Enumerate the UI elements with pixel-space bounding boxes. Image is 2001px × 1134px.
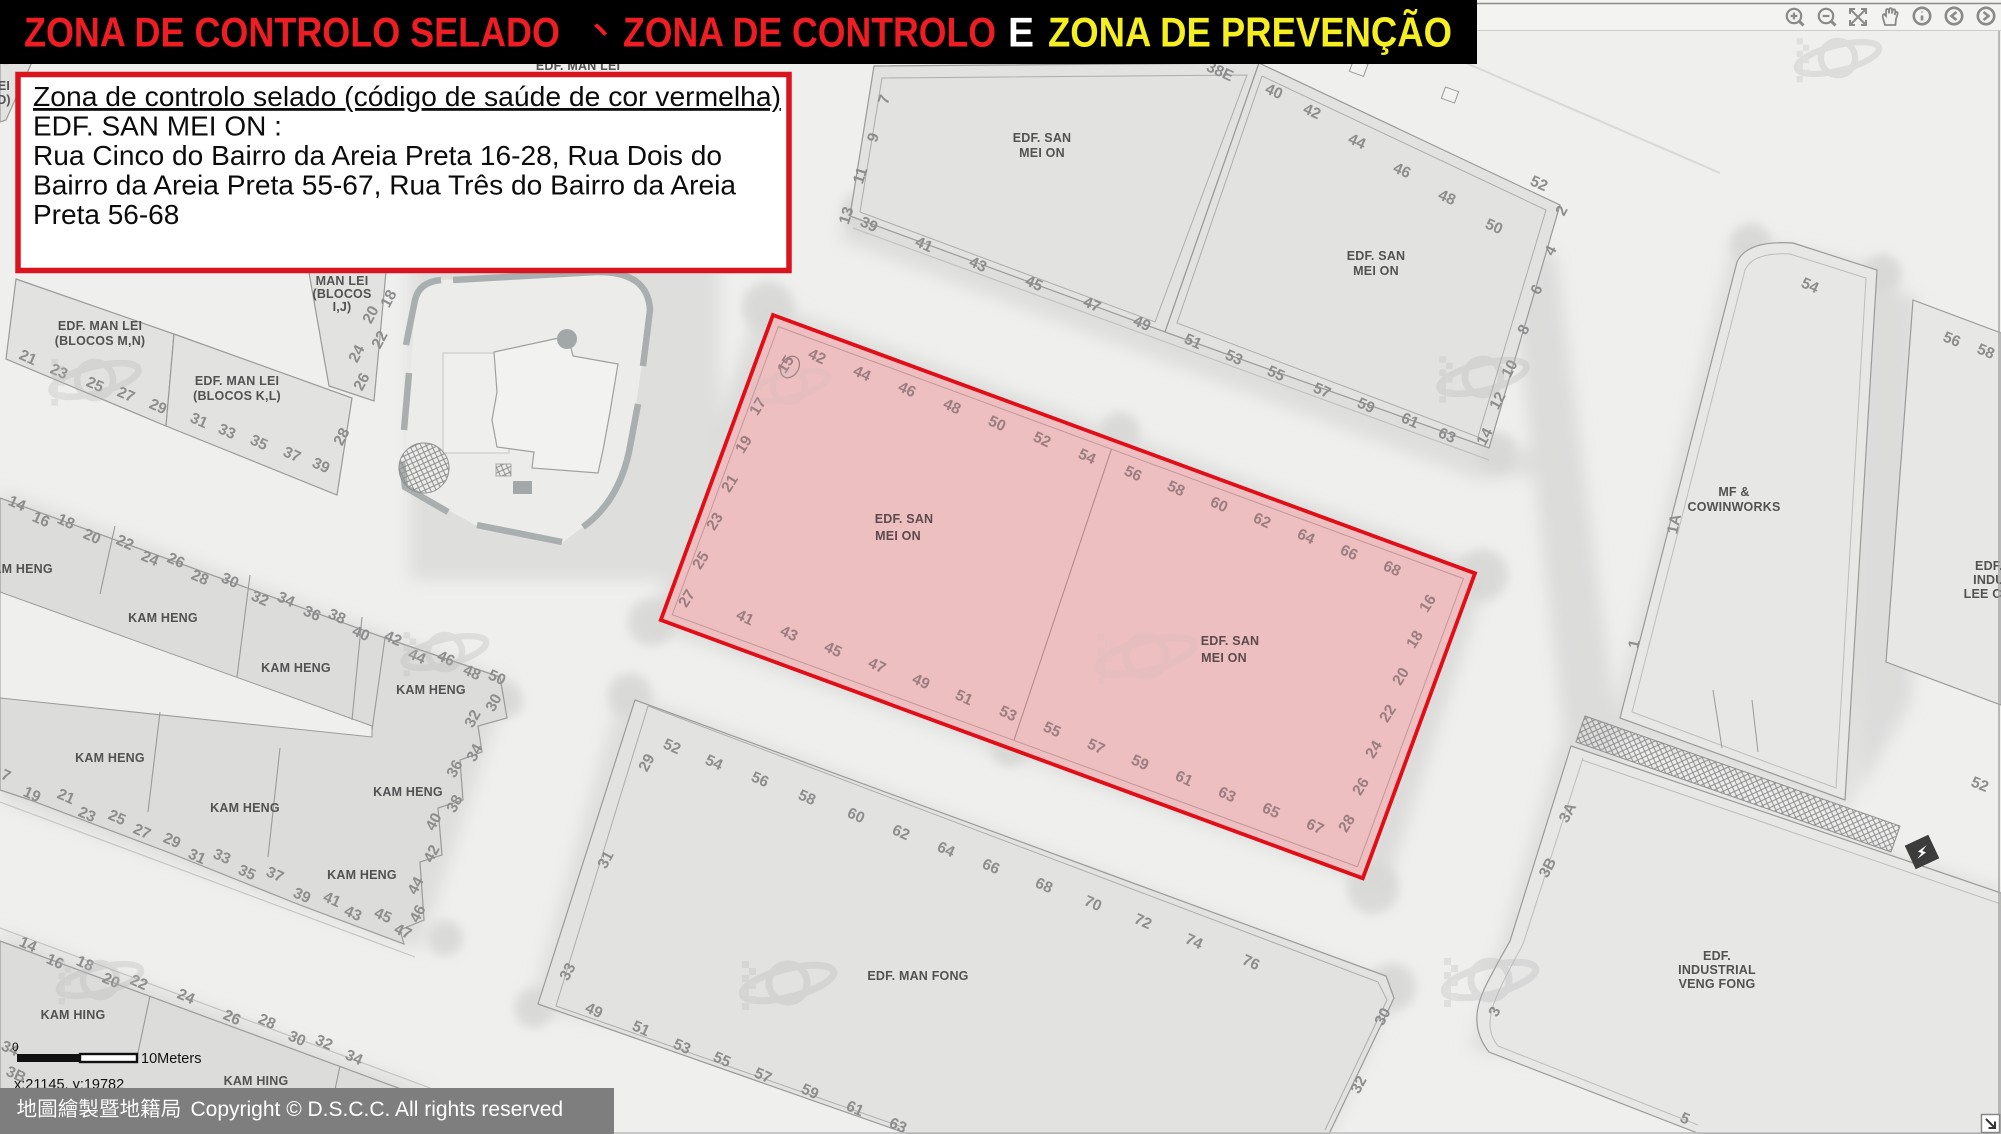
svg-text:COWINWORKS: COWINWORKS [1688, 500, 1781, 514]
svg-text:MEI ON: MEI ON [1353, 264, 1399, 278]
svg-text:INDUSTRIAL: INDUSTRIAL [1678, 963, 1756, 977]
svg-text:MEI ON: MEI ON [1201, 651, 1247, 665]
svg-text:LEE CHEONG: LEE CHEONG [1964, 587, 2001, 601]
svg-text:I,J): I,J) [333, 300, 352, 314]
svg-text:E: E [1008, 9, 1034, 56]
svg-text:EDF. SAN MEI ON :: EDF. SAN MEI ON : [33, 111, 282, 142]
svg-text:KAM HING: KAM HING [41, 1008, 106, 1022]
svg-text:EDF. SAN: EDF. SAN [1013, 131, 1072, 145]
svg-text:MF &: MF & [1718, 485, 1749, 499]
svg-text:EDF.: EDF. [1975, 559, 2001, 573]
svg-text:D): D) [0, 93, 11, 107]
svg-text:EDF. SAN: EDF. SAN [1347, 249, 1406, 263]
svg-text:0: 0 [12, 1040, 19, 1054]
svg-text:KAM HENG: KAM HENG [373, 785, 443, 799]
svg-text:EDF. MAN LEI: EDF. MAN LEI [58, 319, 142, 333]
svg-text:KAM HENG: KAM HENG [396, 683, 466, 697]
svg-text:EI: EI [0, 79, 10, 93]
svg-text:INDUSTRIAL: INDUSTRIAL [1973, 573, 2001, 587]
svg-text:MEI ON: MEI ON [1019, 146, 1065, 160]
svg-text:KAM HENG: KAM HENG [0, 562, 53, 576]
svg-text:MEI ON: MEI ON [875, 529, 921, 543]
svg-text:KAM HENG: KAM HENG [128, 611, 198, 625]
svg-text:EDF. SAN: EDF. SAN [1201, 634, 1260, 648]
svg-text:Preta 56-68: Preta 56-68 [33, 199, 179, 230]
svg-text:Rua Cinco do Bairro da Areia P: Rua Cinco do Bairro da Areia Preta 16-28… [33, 140, 722, 171]
svg-text:ZONA DE CONTROLO: ZONA DE CONTROLO [623, 9, 996, 56]
svg-text:KAM HENG: KAM HENG [327, 868, 397, 882]
svg-text:EDF. SAN: EDF. SAN [875, 512, 934, 526]
svg-text:EDF.: EDF. [1703, 949, 1731, 963]
svg-text:KAM HENG: KAM HENG [75, 751, 145, 765]
svg-text:10Meters: 10Meters [141, 1051, 201, 1067]
svg-text:MAN LEI: MAN LEI [316, 274, 369, 288]
svg-text:(BLOCOS K,L): (BLOCOS K,L) [193, 389, 281, 403]
svg-text:EDF. MAN FONG: EDF. MAN FONG [867, 969, 968, 983]
svg-text:(BLOCOS: (BLOCOS [312, 287, 371, 301]
svg-text:Bairro da Areia Preta 55-67, R: Bairro da Areia Preta 55-67, Rua Três do… [33, 170, 736, 201]
svg-text:EDF. MAN LEI: EDF. MAN LEI [195, 374, 279, 388]
svg-text:VENG FONG: VENG FONG [1679, 977, 1756, 991]
svg-text:Copyright © D.S.C.C. All right: Copyright © D.S.C.C. All rights reserved [191, 1098, 564, 1121]
svg-text:(BLOCOS M,N): (BLOCOS M,N) [55, 334, 146, 348]
svg-text:KAM HENG: KAM HENG [261, 661, 331, 675]
svg-text:Zona de controlo selado (códig: Zona de controlo selado (código de saúde… [33, 81, 781, 112]
svg-text:ZONA DE PREVENÇÃO: ZONA DE PREVENÇÃO [1048, 9, 1452, 56]
svg-text:KAM HING: KAM HING [224, 1074, 289, 1088]
svg-text:KAM HENG: KAM HENG [210, 801, 280, 815]
svg-text:ZONA DE CONTROLO SELADO: ZONA DE CONTROLO SELADO [24, 9, 560, 56]
